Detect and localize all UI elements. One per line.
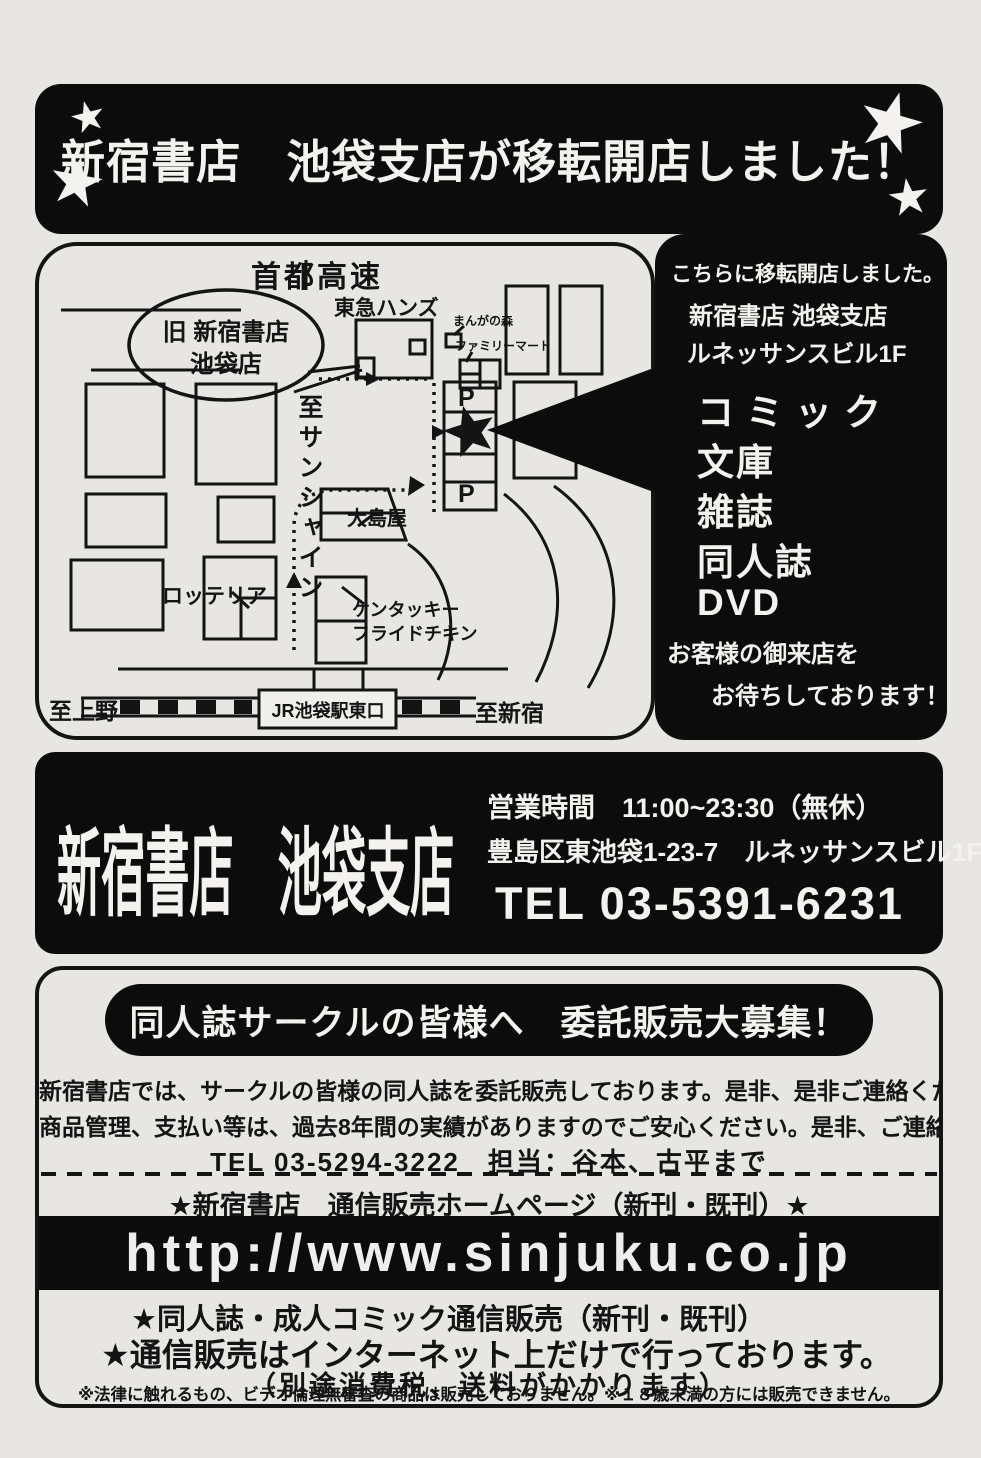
- new-store-star-icon: [443, 406, 493, 457]
- recruit-body2: 商品管理、支払い等は、過去8年間の実績がありますのでご安心ください。是非、ご連絡…: [39, 1108, 939, 1142]
- map-label-to-shinjuku: 至新宿: [475, 694, 544, 728]
- panel-store-name: 新宿書店 池袋支店: [689, 296, 888, 331]
- map-label-manga-no-mori: まんがの森: [453, 312, 513, 329]
- url-band: http://www.sinjuku.co.jp: [39, 1216, 939, 1290]
- recruit-body1: 新宿書店では、サークルの皆様の同人誌を委託販売しております。是非、是非ご連絡くだ…: [39, 1072, 939, 1106]
- panel-item-bunko: 文庫: [697, 432, 775, 486]
- store-address: 豊島区東池袋1-23-7 ルネッサンスビル1F: [487, 832, 981, 869]
- panel-building: ルネッサンスビル1F: [687, 334, 907, 369]
- banner-title: 新宿書店 池袋支店が移転開店しました！: [0, 126, 981, 192]
- store-hours: 営業時間 11:00~23:30（無休）: [487, 786, 882, 825]
- map-label-old-store-line2: 池袋店: [136, 344, 316, 379]
- relocation-banner: ★ ★ ★ ★ 新宿書店 池袋支店が移転開店しました！: [35, 84, 943, 234]
- map-label-expressway: 首都高速: [251, 252, 383, 296]
- recruit-banner: 同人誌サークルの皆様へ 委託販売大募集！: [105, 984, 873, 1056]
- map-label-parking-top: P: [458, 384, 475, 413]
- dashed-divider: [41, 1172, 937, 1176]
- advertisement-page: ★ ★ ★ ★ 新宿書店 池袋支店が移転開店しました！: [0, 0, 981, 1458]
- panel-item-dvd: DVD: [697, 582, 781, 624]
- store-phone: TEL 03-5391-6231: [495, 878, 904, 930]
- map-label-old-store-line1: 旧 新宿書店: [136, 312, 316, 347]
- new-location-panel: こちらに移転開店しました。 新宿書店 池袋支店 ルネッサンスビル1F コミック …: [655, 234, 947, 740]
- map-label-parking-bottom: P: [458, 480, 475, 509]
- map-label-lotteria: ロッテリア: [162, 580, 267, 610]
- fine-print: ※法律に触れるもの、ビデオ倫理無審査の商品は販売しておりません。※１８歳未満の方…: [39, 1381, 939, 1405]
- map-label-kfc-line1: ケンタッキー: [352, 596, 459, 622]
- doujinshi-recruit-section: 同人誌サークルの皆様へ 委託販売大募集！ 新宿書店では、サークルの皆様の同人誌を…: [35, 966, 943, 1408]
- panel-item-doujinshi: 同人誌: [697, 532, 814, 586]
- map-label-to-ueno: 至上野: [49, 692, 118, 726]
- panel-welcome-line1: お客様の御来店を: [667, 634, 859, 669]
- map-label-tokyu-hands: 東急ハンズ: [334, 292, 439, 322]
- homepage-url: http://www.sinjuku.co.jp: [125, 1223, 853, 1284]
- store-info-band: 新宿書店 池袋支店 営業時間 11:00~23:30（無休） 豊島区東池袋1-2…: [35, 752, 943, 954]
- map-label-to-sunshine: 至サンシャイン: [291, 394, 327, 659]
- map-label-oshimaya: 大島屋: [347, 502, 407, 531]
- map-label-station: JR池袋駅東口: [260, 697, 396, 723]
- panel-item-comic: コミック: [697, 382, 893, 436]
- store-name-large: 新宿書店 池袋支店: [57, 796, 454, 935]
- panel-welcome-line2: お待ちしております！: [711, 676, 950, 711]
- map-label-kfc-line2: フライドチキン: [352, 620, 477, 646]
- panel-item-zasshi: 雑誌: [697, 482, 775, 536]
- panel-moved-here: こちらに移転開店しました。: [671, 258, 944, 288]
- map-label-family-mart: ファミリーマート: [455, 337, 551, 354]
- access-map: 首都高速 旧 新宿書店 池袋店 東急ハンズ まんがの森 ファミリーマート 至サン…: [35, 242, 655, 740]
